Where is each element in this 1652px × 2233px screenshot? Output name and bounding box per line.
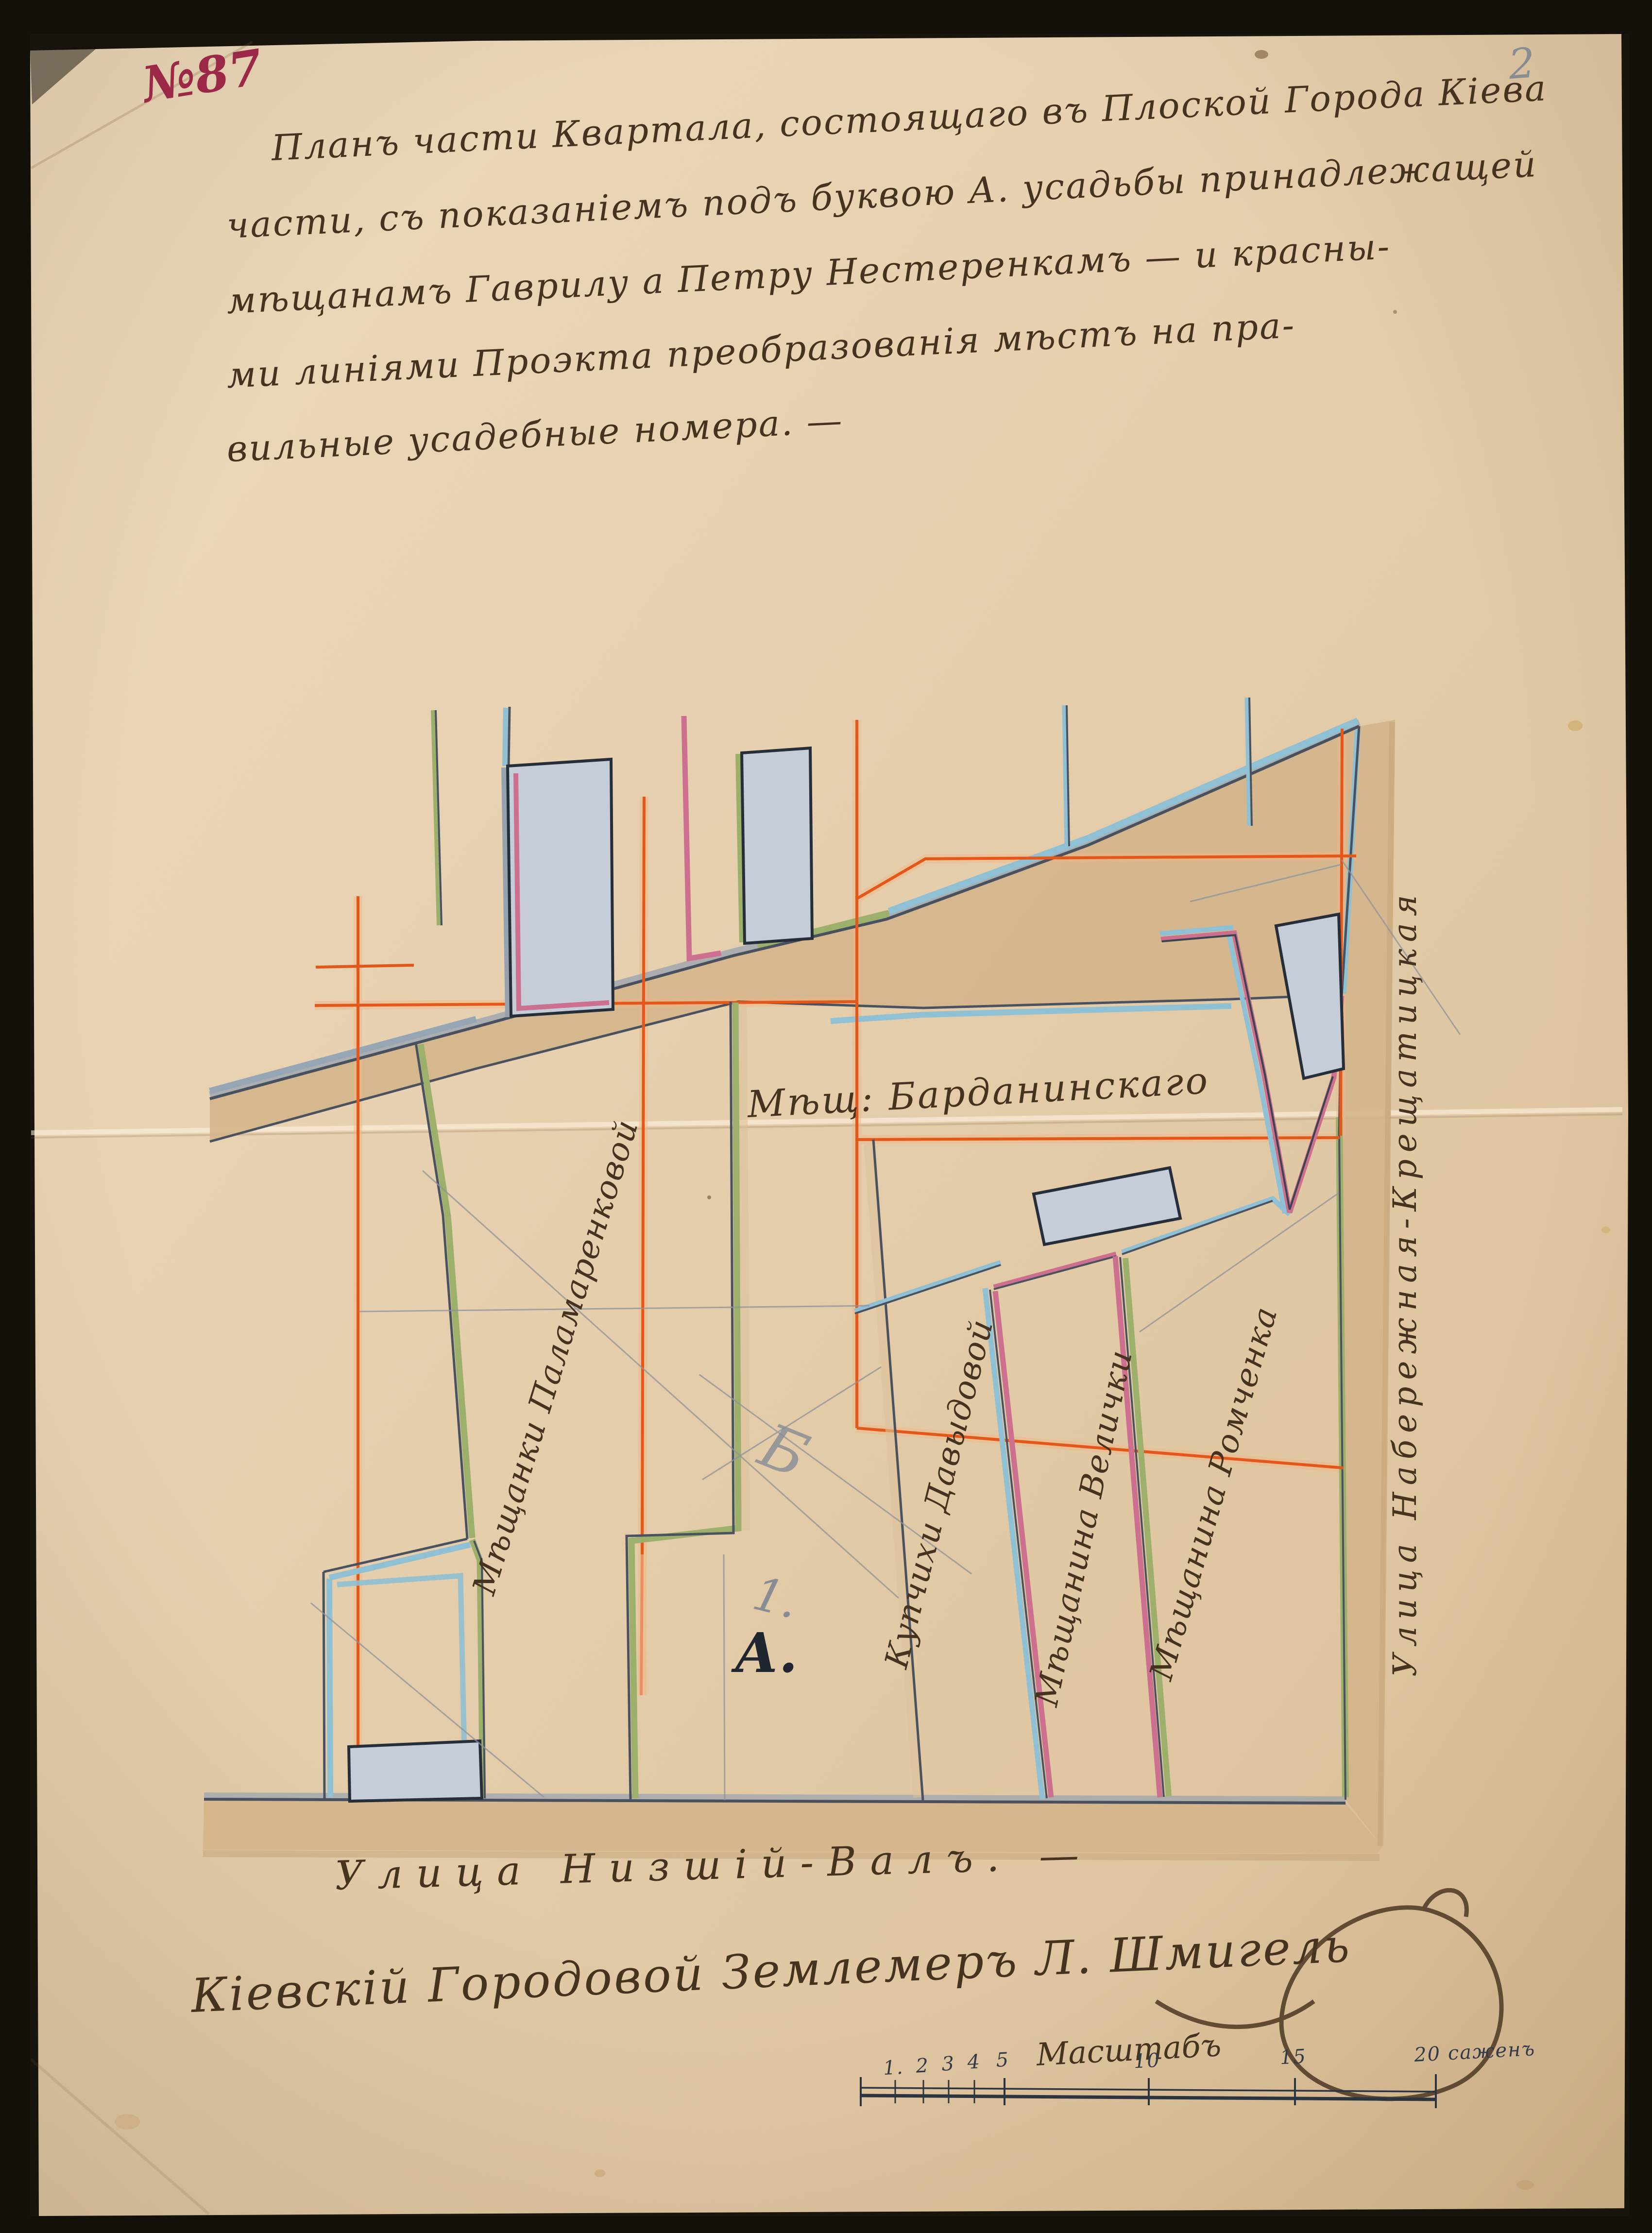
building — [508, 759, 613, 1016]
stain — [1516, 2180, 1534, 2190]
scale-num-5: 5 — [995, 2048, 1010, 2071]
blue-stub — [505, 708, 506, 766]
ink-speck — [707, 1195, 711, 1199]
stain — [1568, 720, 1583, 731]
building — [349, 1741, 482, 1801]
plan-canvas: №87 2 Планъ части Квартала, состоящаго в… — [0, 0, 1652, 2233]
stain — [595, 2169, 605, 2177]
blue-boundary — [329, 1579, 330, 1797]
parcel-letter: А. — [731, 1621, 798, 1685]
red-line-horizontal-mid — [857, 1138, 1340, 1140]
stain — [1601, 1227, 1610, 1233]
street-label-right: Улица Набережная-Крещатицкая — [1386, 888, 1424, 1676]
scale-num-3: 3 — [941, 2052, 955, 2075]
building — [742, 748, 812, 943]
red-line-vertical-mid — [642, 797, 644, 1554]
stain — [1255, 50, 1268, 59]
red-line-cross — [316, 965, 414, 967]
ink-speck — [1393, 310, 1397, 314]
scale-num-4: 4 — [966, 2050, 981, 2073]
pencil-line — [724, 1554, 725, 1800]
boundary-core — [324, 1572, 324, 1798]
scanned-plan-sheet: №87 2 Планъ части Квартала, состоящаго в… — [0, 0, 1652, 2233]
old-boundary-halo — [742, 1006, 745, 1530]
red-line-street-edge — [1341, 729, 1342, 1136]
red-line-vertical-mid-fade — [641, 1554, 642, 1695]
scale-num-10: 10 — [1133, 2049, 1161, 2073]
scale-num-1: 1. — [883, 2056, 904, 2080]
stain — [115, 2114, 140, 2130]
blue-stub-core — [509, 707, 510, 766]
scale-num-15: 15 — [1279, 2045, 1307, 2069]
scale-num-2: 2 — [915, 2054, 930, 2077]
